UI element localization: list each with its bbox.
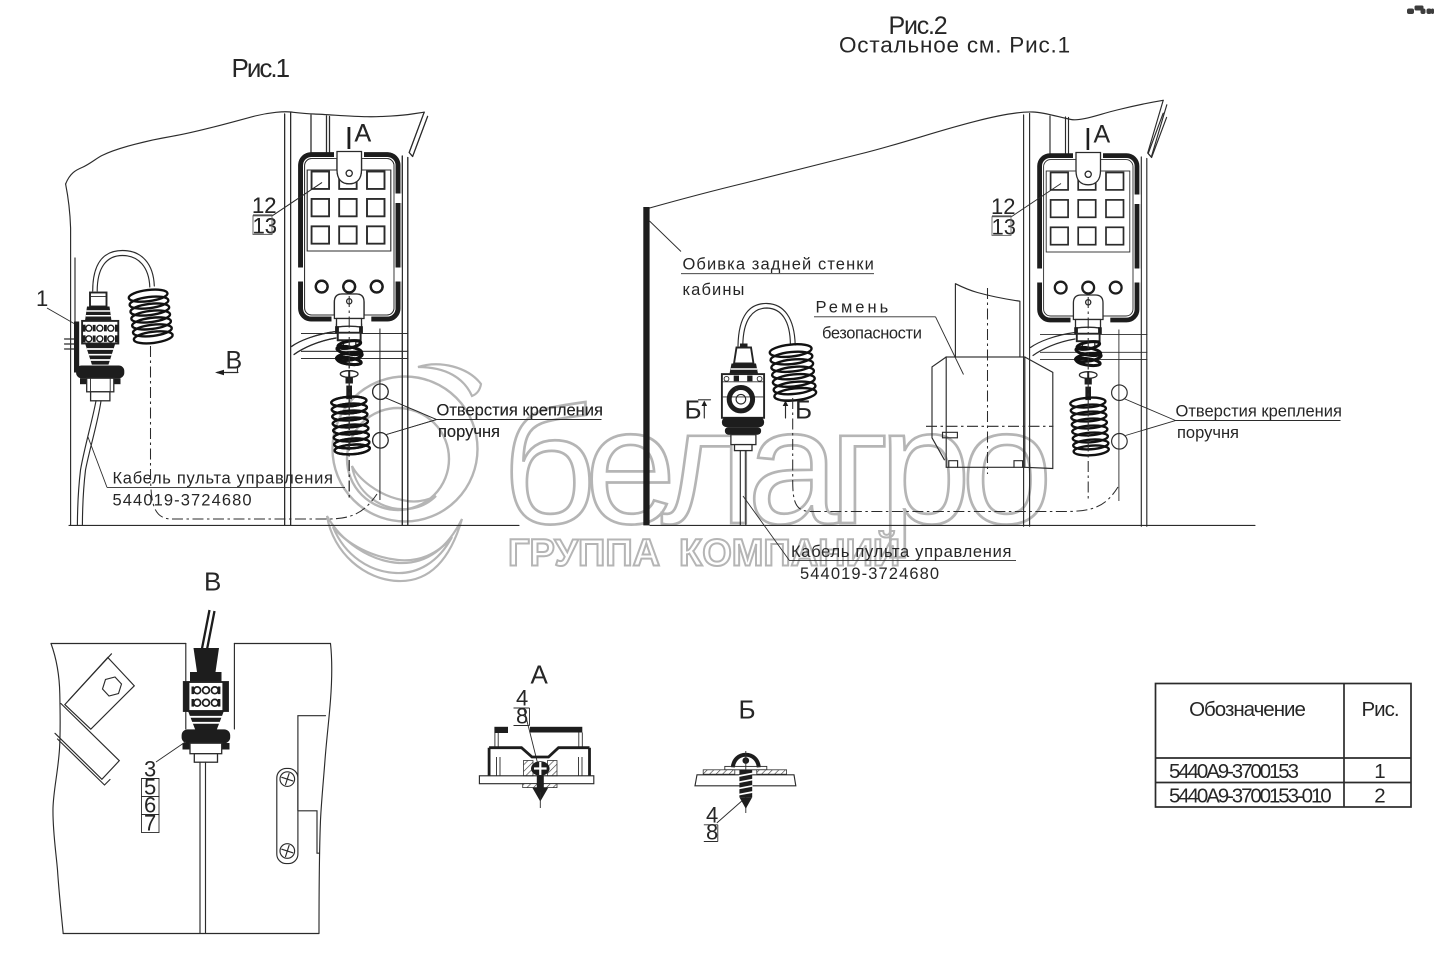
svg-text:А: А <box>531 660 549 690</box>
svg-text:Кабель пульта управления: Кабель пульта управления <box>791 543 1012 561</box>
svg-text:Кабель пульта управления: Кабель пульта управления <box>113 470 334 488</box>
svg-text:544019-3724680: 544019-3724680 <box>113 492 253 510</box>
svg-text:В: В <box>226 347 243 375</box>
svg-text:8: 8 <box>706 820 718 845</box>
svg-text:5440А9-3700153: 5440А9-3700153 <box>1169 760 1299 783</box>
svg-text:Обозначение: Обозначение <box>1189 698 1305 721</box>
svg-text:Б: Б <box>739 695 756 725</box>
svg-text:Обивка задней стенки: Обивка задней стенки <box>683 256 875 274</box>
svg-text:Рис.: Рис. <box>1361 698 1398 721</box>
svg-text:Б: Б <box>685 395 702 425</box>
svg-text:безопасности: безопасности <box>822 325 922 343</box>
svg-text:8: 8 <box>516 704 528 729</box>
svg-text:5440А9-3700153-010: 5440А9-3700153-010 <box>1169 785 1331 808</box>
svg-text:Рис.1: Рис.1 <box>232 53 290 83</box>
svg-text:Б: Б <box>795 395 812 425</box>
svg-text:544019-3724680: 544019-3724680 <box>800 565 940 583</box>
svg-text:1: 1 <box>1374 760 1385 783</box>
svg-text:кабины: кабины <box>683 281 746 299</box>
svg-text:1: 1 <box>36 286 48 311</box>
svg-text:ГРУППА: ГРУППА <box>508 533 660 575</box>
svg-text:Ремень: Ремень <box>816 299 892 317</box>
svg-text:2: 2 <box>1374 785 1385 808</box>
svg-text:Остальное см. Рис.1: Остальное см. Рис.1 <box>839 33 1071 58</box>
svg-text:В: В <box>204 567 221 597</box>
